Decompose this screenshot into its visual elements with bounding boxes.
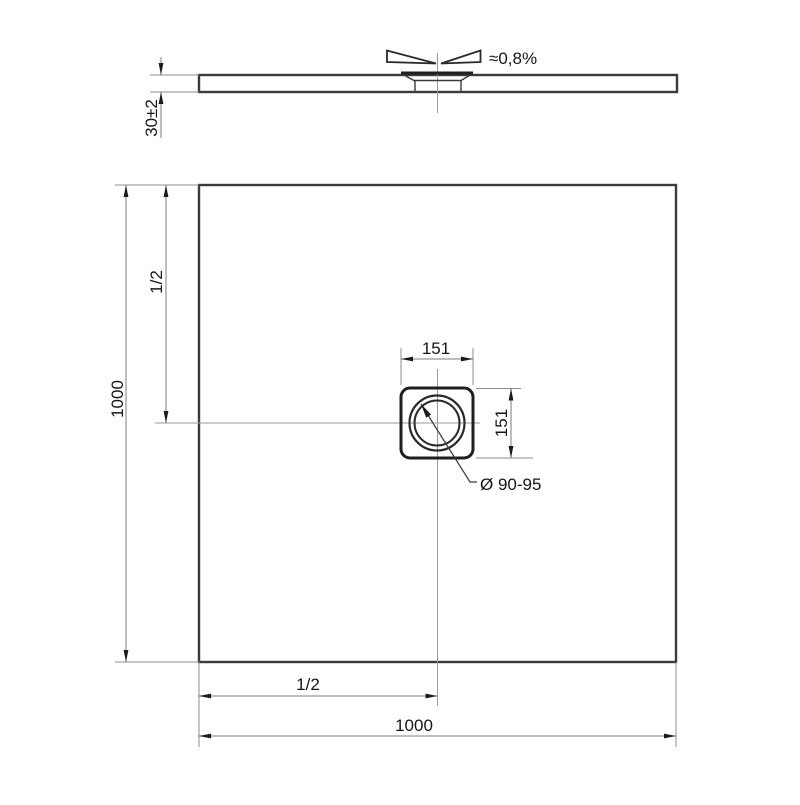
drain-height-label: 151 [492,409,511,437]
plan-half-height-label: 1/2 [147,270,166,294]
plan-view: 1000 1/2 151 151 Ø 90-95 1/2 [108,185,676,747]
plan-height-label: 1000 [108,380,127,418]
drawing-svg: ≈0,8% 30±2 1000 [0,0,800,800]
slope-wedge-left-icon [387,51,436,64]
drain-height-dimension: 151 [476,389,533,459]
side-view: ≈0,8% 30±2 [142,49,677,138]
thickness-label: 30±2 [142,99,161,137]
slope-label: ≈0,8% [489,49,537,68]
drain-diameter-leader: Ø 90-95 [421,404,541,494]
thickness-dimension: 30±2 [142,57,199,138]
drain-diameter-label: Ø 90-95 [480,475,541,494]
slope-wedge-right-icon [441,51,481,64]
technical-drawing: ≈0,8% 30±2 1000 [0,0,800,800]
drain-width-label: 151 [422,339,450,358]
plan-half-width-label: 1/2 [296,675,320,694]
plan-width-label: 1000 [395,716,433,735]
